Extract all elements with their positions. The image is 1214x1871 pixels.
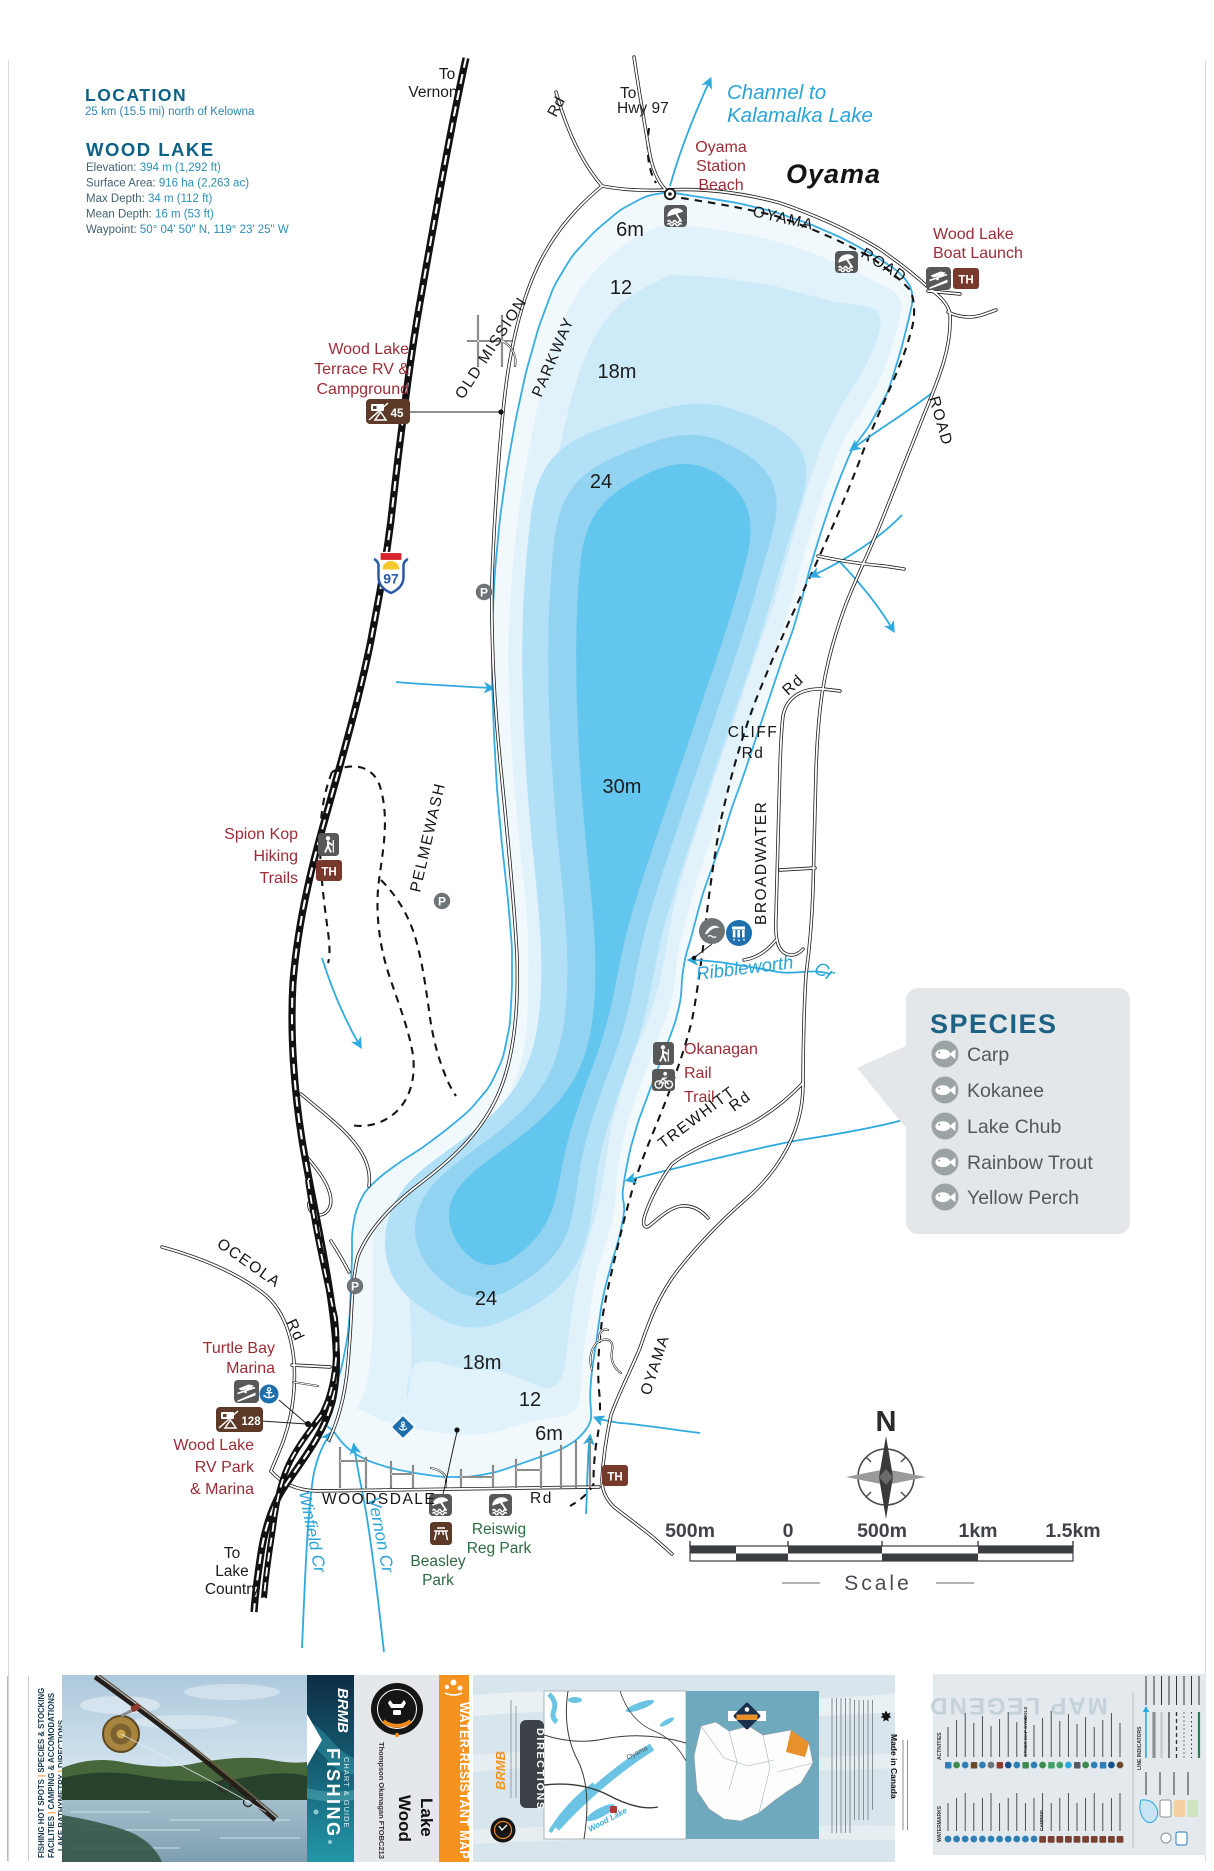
svg-text:Turtle Bay: Turtle Bay	[203, 1340, 275, 1357]
svg-text:6m: 6m	[535, 1423, 563, 1445]
svg-text:N: N	[876, 1406, 897, 1438]
svg-text:Surface Area: 916 ha (2,263 ac: Surface Area: 916 ha (2,263 ac)	[86, 178, 249, 190]
svg-text:CAMPING: CAMPING	[1039, 1809, 1044, 1831]
svg-text:Lake Chub: Lake Chub	[967, 1116, 1061, 1138]
svg-text:Lake: Lake	[417, 1798, 436, 1837]
svg-text:SPECIES: SPECIES	[930, 1009, 1058, 1039]
svg-text:BRMB: BRMB	[334, 1688, 351, 1733]
svg-text:WOOD LAKE: WOOD LAKE	[86, 139, 215, 160]
svg-text:Hwy 97: Hwy 97	[617, 100, 669, 117]
svg-text:Wood: Wood	[395, 1795, 414, 1842]
svg-text:Mean Depth: 16 m (53 ft): Mean Depth: 16 m (53 ft)	[86, 209, 214, 221]
svg-text:0: 0	[783, 1520, 794, 1542]
svg-text:Rd: Rd	[742, 745, 765, 762]
svg-text:Wood Lake: Wood Lake	[173, 1437, 254, 1454]
svg-text:& Marina: & Marina	[190, 1481, 254, 1498]
svg-text:DIRECTIONS: DIRECTIONS	[534, 1728, 546, 1811]
svg-text:Scale: Scale	[844, 1572, 912, 1595]
svg-text:Carp: Carp	[967, 1044, 1009, 1066]
svg-text:Country: Country	[205, 1581, 260, 1598]
svg-text:Oyama: Oyama	[695, 139, 747, 156]
svg-text:18m: 18m	[598, 361, 637, 383]
svg-text:Rainbow Trout: Rainbow Trout	[967, 1152, 1093, 1174]
svg-text:12: 12	[610, 277, 632, 299]
svg-text:Reiswig: Reiswig	[472, 1521, 526, 1538]
svg-text:CHART & GUIDE: CHART & GUIDE	[342, 1757, 351, 1828]
svg-text:CLIFF: CLIFF	[728, 724, 779, 741]
svg-text:Lake: Lake	[215, 1563, 249, 1580]
svg-text:FISHING HOT SPOTS | SPECIES &: FISHING HOT SPOTS | SPECIES & STOCKING	[37, 1688, 46, 1858]
svg-text:ACTIVITIES: ACTIVITIES	[937, 1732, 943, 1760]
svg-text:Reg Park: Reg Park	[467, 1540, 532, 1557]
svg-text:FISHING: FISHING	[323, 1748, 343, 1839]
svg-text:MAP LEGEND: MAP LEGEND	[928, 1692, 1108, 1719]
svg-text:To: To	[224, 1545, 240, 1562]
svg-text:Kokanee: Kokanee	[967, 1080, 1044, 1102]
svg-text:45: 45	[391, 408, 404, 420]
svg-text:Boat Launch: Boat Launch	[933, 245, 1023, 262]
svg-text:BRMB: BRMB	[493, 1751, 508, 1790]
svg-text:FACILITIES | CAMPING & ACCOMOD: FACILITIES | CAMPING & ACCOMODATIONS	[47, 1693, 56, 1858]
svg-text:Marina: Marina	[226, 1360, 275, 1377]
svg-text:18m: 18m	[463, 1352, 502, 1374]
svg-text:Terrace RV &: Terrace RV &	[314, 361, 409, 378]
svg-text:Wood Lake: Wood Lake	[933, 226, 1014, 243]
svg-text:Made in Canada: Made in Canada	[889, 1734, 899, 1799]
svg-text:24: 24	[475, 1288, 497, 1310]
svg-text:12: 12	[519, 1389, 541, 1411]
svg-text:Spion Kop: Spion Kop	[224, 826, 298, 843]
svg-text:Hiking: Hiking	[254, 848, 298, 865]
svg-text:Trails: Trails	[259, 870, 298, 887]
svg-text:RV Park: RV Park	[195, 1459, 255, 1476]
svg-text:Max Depth: 34 m (112 ft): Max Depth: 34 m (112 ft)	[86, 193, 213, 205]
svg-text:Rail: Rail	[684, 1065, 712, 1082]
svg-text:Elevation: 394 m (1,292 ft): Elevation: 394 m (1,292 ft)	[86, 162, 221, 174]
svg-text:Beach: Beach	[698, 177, 743, 194]
svg-text:Beasley: Beasley	[410, 1553, 465, 1570]
svg-text:Waypoint: 50° 04' 50" N, 119°: Waypoint: 50° 04' 50" N, 119° 23' 25" W	[86, 224, 289, 236]
svg-text:Oyama: Oyama	[786, 159, 881, 189]
svg-text:Campground: Campground	[317, 381, 410, 398]
svg-text:OTHER MAP SYMBOLS: OTHER MAP SYMBOLS	[1023, 1707, 1028, 1757]
svg-text:To: To	[439, 66, 455, 83]
svg-text:BROADWATER: BROADWATER	[753, 801, 770, 925]
svg-text:LINE INDICATORS: LINE INDICATORS	[1137, 1726, 1143, 1770]
svg-text:25 km (15.5 mi) north of Kelow: 25 km (15.5 mi) north of Kelowna	[85, 106, 255, 118]
svg-text:Wood Lake: Wood Lake	[328, 341, 409, 358]
svg-text:Okanagan: Okanagan	[684, 1041, 758, 1058]
svg-text:Channel to: Channel to	[727, 81, 826, 104]
svg-text:Rd: Rd	[530, 1490, 553, 1507]
svg-text:Station: Station	[696, 158, 746, 175]
svg-text:500m: 500m	[665, 1520, 715, 1542]
svg-text:97: 97	[383, 571, 399, 587]
svg-text:500m: 500m	[857, 1520, 907, 1542]
svg-text:WATER-RESISTANT MAP: WATER-RESISTANT MAP	[457, 1702, 471, 1859]
svg-text:128: 128	[241, 1416, 261, 1428]
svg-text:Thompson Okanagan FTOBC213: Thompson Okanagan FTOBC213	[377, 1742, 386, 1859]
svg-text:30m: 30m	[603, 776, 642, 798]
svg-text:1km: 1km	[958, 1520, 997, 1542]
svg-text:1.5km: 1.5km	[1045, 1520, 1100, 1542]
svg-text:LOCATION: LOCATION	[85, 85, 187, 105]
svg-text:WATERMARKS: WATERMARKS	[937, 1805, 943, 1842]
svg-text:Vernon: Vernon	[408, 84, 457, 101]
svg-text:Yellow Perch: Yellow Perch	[967, 1187, 1079, 1209]
svg-text:24: 24	[590, 471, 612, 493]
svg-text:6m: 6m	[616, 219, 644, 241]
svg-text:Kalamalka Lake: Kalamalka Lake	[727, 104, 873, 127]
svg-text:Park: Park	[422, 1572, 454, 1589]
